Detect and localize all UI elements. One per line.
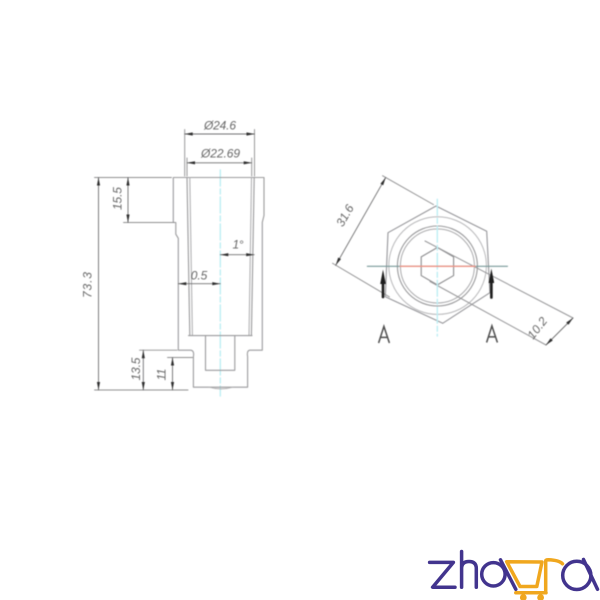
svg-text:13.5: 13.5 [129,357,143,380]
svg-text:15.5: 15.5 [111,187,125,210]
svg-text:73.3: 73.3 [81,272,95,298]
svg-text:Ø24.6: Ø24.6 [203,119,236,133]
svg-text:0.5: 0.5 [191,269,208,283]
svg-text:Ø22.69: Ø22.69 [200,147,240,161]
svg-text:1°: 1° [233,238,244,252]
svg-text:11: 11 [155,369,169,381]
